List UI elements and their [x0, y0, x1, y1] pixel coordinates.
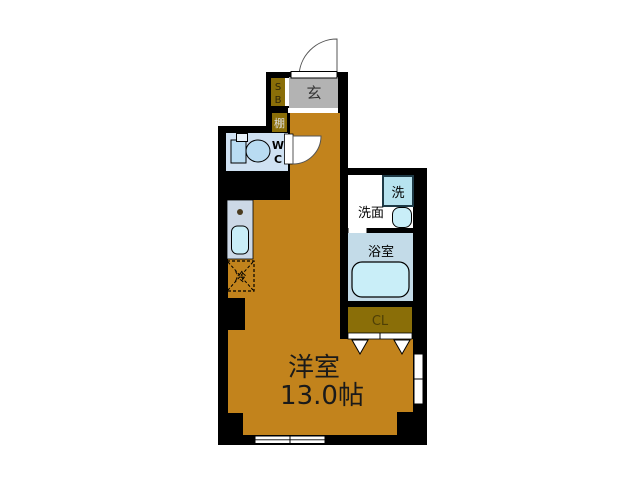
closet-label: CL [372, 314, 389, 329]
shoe-box-gap [285, 78, 289, 106]
shelf-label: 棚 [274, 116, 285, 130]
refrigerator-label: 冷 [234, 270, 246, 284]
pillar-left [226, 296, 246, 331]
kitchen-burner-icon [237, 209, 243, 215]
pillar-bottom-right [395, 410, 415, 436]
window-right [414, 354, 423, 404]
main-room-size: 13.0帖 [280, 381, 364, 411]
bathroom-door-opening [349, 228, 367, 234]
wc-letter-c: C [274, 153, 282, 166]
kitchen-sink-icon [232, 226, 249, 254]
floor-plan: 玄 S B 棚 W C 冷 洗 洗面 浴室 CL [0, 0, 640, 480]
toilet-bowl-icon [246, 140, 270, 162]
bathtub-icon [352, 262, 409, 297]
shoe-box-letter-s: S [275, 82, 281, 93]
toilet-lid-icon [237, 134, 248, 142]
bathroom-label: 浴室 [368, 244, 394, 260]
entrance-step [288, 108, 338, 113]
washbasin-icon [393, 208, 412, 228]
main-room-name: 洋室 [288, 353, 340, 383]
window-bottom [255, 436, 325, 444]
entrance-label: 玄 [306, 84, 321, 102]
shoe-box-letter-b: B [275, 95, 282, 106]
floor-plan-canvas: 玄 S B 棚 W C 冷 洗 洗面 浴室 CL [0, 0, 640, 480]
wc-letter-w: W [272, 139, 284, 152]
laundry-label: 洗 [391, 186, 404, 201]
pillar-bottom-left [226, 410, 245, 436]
toilet-tank-icon [231, 140, 246, 163]
washroom-label: 洗面 [358, 206, 384, 221]
entrance-door-leaf [291, 72, 337, 79]
wc-door-leaf [285, 134, 294, 164]
